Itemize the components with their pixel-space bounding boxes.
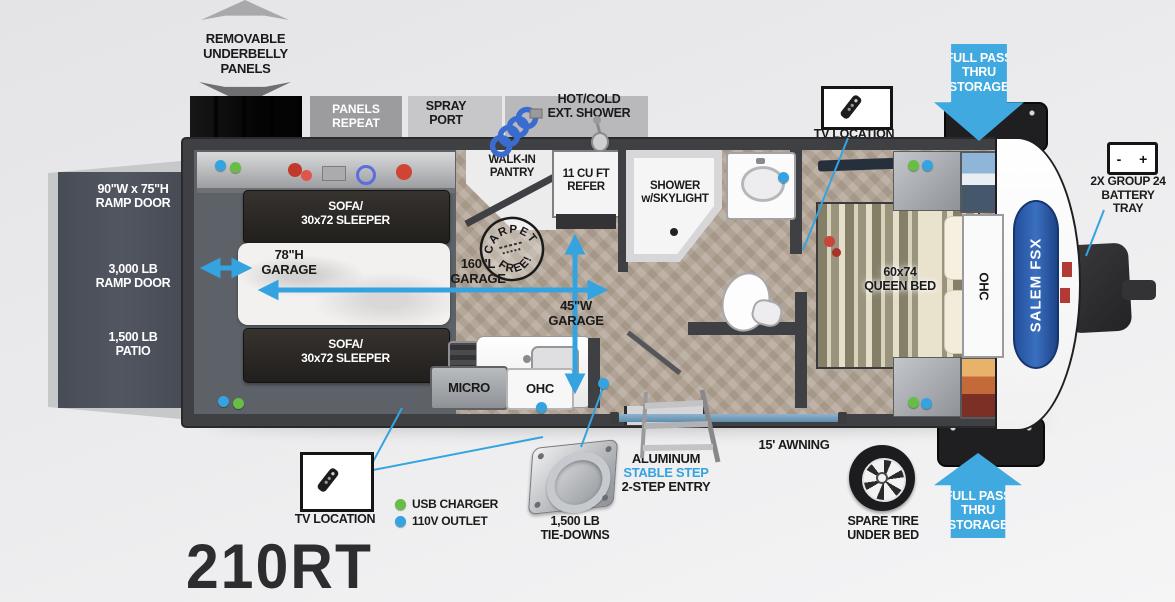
garage-width-label: 45"W GARAGE [540, 299, 612, 329]
outlet-dot-bedroom-top [922, 160, 933, 171]
wall-kitchen-right [588, 338, 600, 408]
usb-charger-label: USB CHARGER [412, 498, 522, 512]
garage-height-label: 78"H GARAGE [246, 248, 332, 278]
bed-item-red-1 [824, 236, 835, 247]
ext-shower-label: HOT/COLD EXT. SHOWER [533, 92, 645, 121]
usb-dot-bedroom-bottom [908, 397, 919, 408]
spray-port-label: SPRAY PORT [410, 99, 482, 128]
hitch-strap-2 [1060, 288, 1070, 303]
bedroom-ohc: OHC [962, 214, 1004, 358]
salem-fsx-logo: SALEM FSX [1013, 200, 1059, 369]
outlet-dot-garage-bottom [218, 396, 229, 407]
usb-dot-garage-top [230, 162, 241, 173]
patio-capacity-label: 1,500 LB PATIO [78, 330, 188, 359]
tv-location-bottom-label: TV LOCATION [280, 512, 390, 526]
kitchen-ohc-label: OHC [526, 382, 554, 397]
microwave: MICRO [430, 366, 508, 410]
refrigerator-label: 11 CU FT REFER [552, 168, 620, 194]
garage-length-label: 160"L GARAGE [432, 257, 524, 287]
spare-tire-icon [849, 445, 915, 511]
shower-label: SHOWER w/SKYLIGHT [628, 180, 722, 206]
underbelly-arrow-up-icon [201, 0, 289, 20]
panels-repeat-label: PANELS REPEAT [332, 103, 380, 130]
sofa-bottom-label: SOFA/ 30x72 SLEEPER [253, 338, 438, 365]
bath-sink-icon [741, 166, 785, 202]
spare-tire-hub-icon [876, 472, 888, 484]
awning-end-left [610, 412, 619, 424]
full-pass-thru-top-label: FULL PASS THRU STORAGE [946, 51, 1013, 94]
underbelly-panel-dark [190, 96, 302, 137]
kitchen-faucet-icon [523, 355, 531, 363]
gear-item-box [322, 166, 346, 181]
spare-tire-label: SPARE TIRE UNDER BED [836, 514, 930, 543]
bath-vanity [726, 152, 796, 220]
wall-bath-right-bottom [795, 292, 807, 408]
tie-down-icon [528, 439, 618, 515]
step-entry-label-3: 2-STEP ENTRY [610, 480, 722, 495]
tv-remote-icon [839, 94, 863, 121]
ramp-door-size-label: 90"W x 75"H RAMP DOOR [78, 182, 188, 211]
tv-location-top-icon [821, 86, 893, 130]
tie-down-ring-icon [545, 449, 613, 516]
usb-legend-dot [395, 499, 406, 510]
gear-item-red-2 [301, 170, 312, 181]
outlet-dot-counter [536, 402, 547, 413]
refrigerator-base [556, 214, 616, 229]
gear-item-red-3 [396, 164, 412, 180]
bedroom-ohc-label: OHC [976, 272, 991, 300]
model-number: 210RT [186, 530, 373, 602]
tv-location-bottom-icon [300, 452, 374, 512]
outlet-dot-bath [778, 172, 789, 183]
awning-label: 15' AWNING [748, 438, 840, 453]
panels-repeat-block: PANELS REPEAT [310, 96, 402, 137]
removable-underbelly-label: REMOVABLE UNDERBELLY PANELS [168, 32, 323, 76]
queen-bed-label: 60x74 QUEEN BED [848, 265, 952, 294]
tv-remote-bottom-icon [316, 467, 340, 494]
outlet-dot-kitchen [598, 378, 609, 389]
usb-dot-bedroom-top [908, 160, 919, 171]
awning-end-right [838, 412, 847, 424]
hitch-coupler [1122, 280, 1156, 300]
gear-item-rope [356, 165, 376, 185]
full-pass-thru-bottom-label: FULL PASS THRU STORAGE [945, 489, 1012, 532]
microwave-label: MICRO [448, 381, 490, 396]
hitch-strap-1 [1062, 262, 1072, 277]
outlet-dot-bedroom-bottom [921, 398, 932, 409]
battery-tray-label: 2X GROUP 24 BATTERY TRAY [1080, 175, 1175, 216]
salem-fsx-logo-text: SALEM FSX [1028, 237, 1045, 332]
tv-bottom-pointer-line-2 [368, 437, 543, 471]
tie-downs-label: 1,500 LB TIE-DOWNS [515, 514, 635, 543]
outlet-110v-label: 110V OUTLET [412, 515, 522, 529]
tie-down-bolt-3 [534, 502, 540, 509]
outlet-legend-dot [395, 516, 406, 527]
floorplan-diagram: REMOVABLE UNDERBELLY PANELS PANELS REPEA… [0, 0, 1175, 602]
sofa-top-label: SOFA/ 30x72 SLEEPER [253, 200, 438, 227]
awning-roll [612, 414, 847, 422]
battery-icon: - + [1107, 142, 1158, 175]
shower-drain-icon [670, 228, 678, 236]
ramp-door-capacity-label: 3,000 LB RAMP DOOR [78, 262, 188, 291]
battery-polarity-label: - + [1117, 151, 1155, 167]
gear-item-red-1 [288, 163, 302, 177]
tie-down-bolt-1 [538, 453, 544, 460]
pantry-label: WALK-IN PANTRY [470, 154, 554, 180]
usb-dot-garage-bottom [233, 398, 244, 409]
outlet-dot-garage-top [215, 160, 226, 171]
bed-item-red-2 [832, 248, 841, 257]
bath-faucet-icon [756, 158, 765, 164]
tie-down-bolt-4 [602, 494, 608, 501]
